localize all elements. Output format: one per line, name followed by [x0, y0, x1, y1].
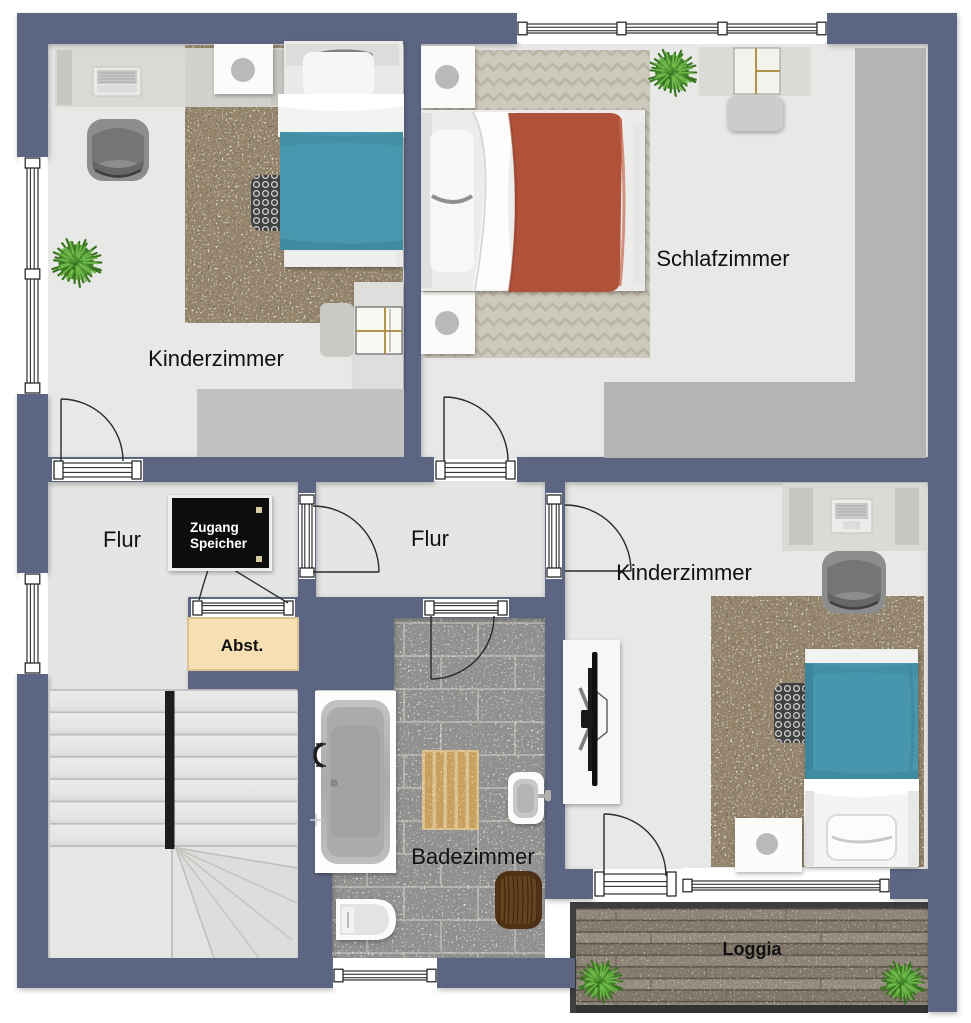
svg-text:Flur: Flur — [411, 526, 449, 551]
svg-text:Schlafzimmer: Schlafzimmer — [656, 246, 789, 271]
svg-text:Abst.: Abst. — [221, 636, 264, 655]
svg-text:Kinderzimmer: Kinderzimmer — [148, 346, 284, 371]
svg-text:Loggia: Loggia — [723, 939, 783, 959]
svg-text:Speicher: Speicher — [190, 536, 248, 551]
svg-text:Kinderzimmer: Kinderzimmer — [616, 560, 752, 585]
svg-text:Zugang: Zugang — [190, 520, 239, 535]
svg-text:Flur: Flur — [103, 527, 141, 552]
svg-text:Badezimmer: Badezimmer — [411, 844, 534, 869]
